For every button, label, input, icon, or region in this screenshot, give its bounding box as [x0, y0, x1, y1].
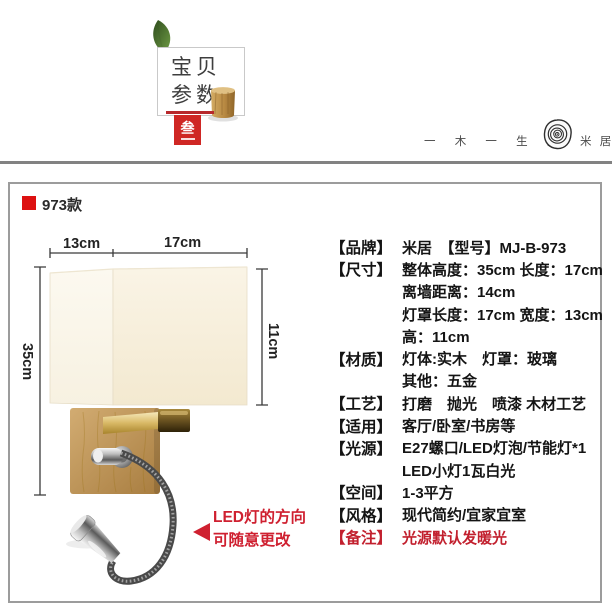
spec-row-usage: 【适用】 客厅/卧室/书房等	[330, 414, 602, 436]
spec-label: 【适用】	[330, 415, 402, 437]
wood-stump-icon	[205, 84, 241, 122]
spec-label: 【空间】	[330, 481, 402, 503]
dim-35cm: 35cm	[19, 343, 35, 380]
spec-value: E27螺口/LED灯泡/节能灯*1	[402, 437, 586, 458]
spec-label: 【备注】	[330, 526, 402, 548]
spec-row-light-source: 【光源】 E27螺口/LED灯泡/节能灯*1	[330, 437, 602, 459]
chapter-badge-char: 叁	[181, 121, 195, 136]
spec-row-note: 【备注】 光源默认发暖光	[330, 526, 602, 548]
spec-label: 【风格】	[330, 504, 402, 526]
header-title-line1: 宝贝	[171, 54, 244, 82]
spec-row-craft: 【工艺】 打磨 抛光 喷漆 木材工艺	[330, 392, 602, 414]
badge-underline-strip	[166, 111, 214, 114]
lamp-shade	[50, 267, 247, 405]
spec-row-material-2: 其他：五金	[330, 370, 602, 392]
spec-value: 其他：五金	[402, 370, 477, 391]
spec-value: 打磨 抛光 喷漆 木材工艺	[402, 393, 586, 414]
tree-ring-logo-icon	[542, 118, 573, 151]
spec-label: 【材质】	[330, 348, 402, 370]
spec-row-material: 【材质】 灯体:实木 灯罩：玻璃	[330, 347, 602, 369]
spec-row-size-4: 高：11cm	[330, 325, 602, 347]
brand-slogan: 一 木 一 生 活	[424, 133, 559, 149]
spec-value: 灯罩长度：17cm 宽度：13cm	[402, 304, 603, 325]
note-arrow-icon	[193, 523, 210, 541]
spec-row-space: 【空间】 1-3平方	[330, 481, 602, 503]
badge-rule	[181, 138, 195, 140]
spec-value: 客厅/卧室/书房等	[402, 415, 515, 436]
dim-17cm: 17cm	[164, 235, 201, 251]
spec-value: 整体高度：35cm 长度：17cm	[402, 259, 603, 280]
brand-name: 米 居	[580, 133, 611, 149]
spec-label: 【品牌】	[330, 236, 402, 258]
spec-value: 离墙距离：14cm	[402, 281, 515, 302]
led-direction-note: LED灯的方向 可随意更改	[213, 506, 306, 552]
spec-row-brand: 【品牌】 米居 【型号】MJ-B-973	[330, 236, 602, 258]
spec-label: 【尺寸】	[330, 258, 402, 280]
chapter-badge: 叁	[174, 115, 201, 145]
dim-11cm: 11cm	[265, 323, 281, 359]
spec-label: 【工艺】	[330, 392, 402, 414]
spec-value: 现代简约/宜家宜室	[402, 504, 526, 525]
spec-row-light-source-2: LED小灯1瓦白光	[330, 459, 602, 481]
spec-value: LED小灯1瓦白光	[402, 460, 515, 481]
spec-value: 高：11cm	[402, 326, 470, 347]
dim-13cm: 13cm	[63, 236, 100, 252]
note-line2: 可随意更改	[213, 529, 306, 552]
spec-row-style: 【风格】 现代简约/宜家宜室	[330, 504, 602, 526]
spec-value: 光源默认发暖光	[402, 527, 507, 548]
spec-row-size-2: 离墙距离：14cm	[330, 281, 602, 303]
spec-value: 1-3平方	[402, 482, 454, 503]
led-head	[66, 512, 125, 568]
spec-value: 灯体:实木 灯罩：玻璃	[402, 348, 557, 369]
spec-row-size: 【尺寸】 整体高度：35cm 长度：17cm	[330, 258, 602, 280]
header-divider	[0, 161, 612, 164]
spec-list: 【品牌】 米居 【型号】MJ-B-973 【尺寸】 整体高度：35cm 长度：1…	[330, 236, 602, 548]
spec-row-size-3: 灯罩长度：17cm 宽度：13cm	[330, 303, 602, 325]
spec-label: 【光源】	[330, 437, 402, 459]
note-line1: LED灯的方向	[213, 506, 306, 529]
model-bullet-square	[22, 196, 36, 210]
model-label: 973款	[42, 194, 82, 215]
spec-value: 米居 【型号】MJ-B-973	[402, 237, 566, 258]
